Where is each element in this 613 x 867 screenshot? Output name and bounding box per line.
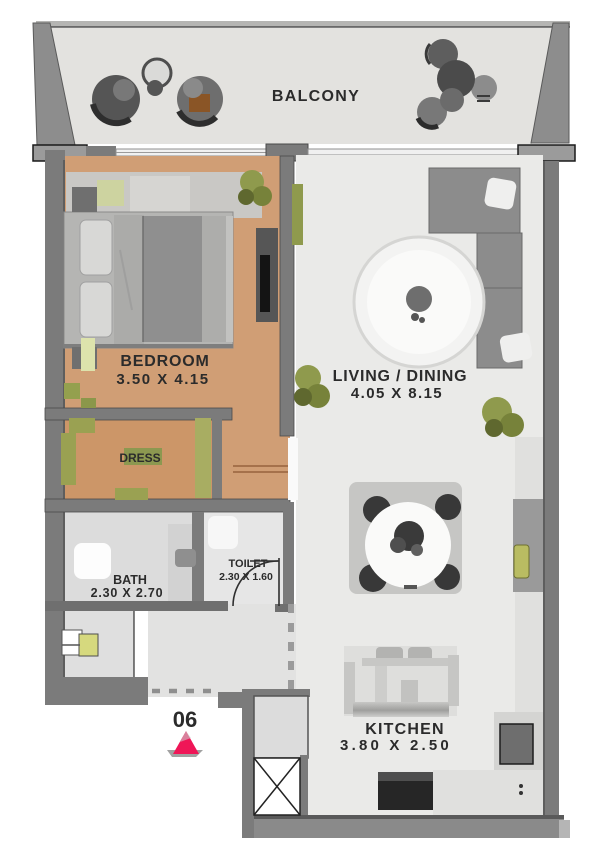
svg-text:LIVING / DINING: LIVING / DINING <box>333 368 468 385</box>
svg-text:3.80 X 2.50: 3.80 X 2.50 <box>340 737 452 754</box>
svg-text:06: 06 <box>173 707 197 732</box>
svg-text:2.30 X 2.70: 2.30 X 2.70 <box>91 586 164 600</box>
svg-text:DRESS: DRESS <box>119 451 160 465</box>
svg-text:KITCHEN: KITCHEN <box>365 721 445 738</box>
svg-text:2.30 X 1.60: 2.30 X 1.60 <box>219 571 273 583</box>
svg-text:3.50 X 4.15: 3.50 X 4.15 <box>116 371 209 388</box>
svg-text:BATH: BATH <box>113 573 147 587</box>
svg-text:4.05 X 8.15: 4.05 X 8.15 <box>351 385 443 402</box>
svg-text:BEDROOM: BEDROOM <box>120 353 209 370</box>
svg-text:BALCONY: BALCONY <box>272 88 360 105</box>
